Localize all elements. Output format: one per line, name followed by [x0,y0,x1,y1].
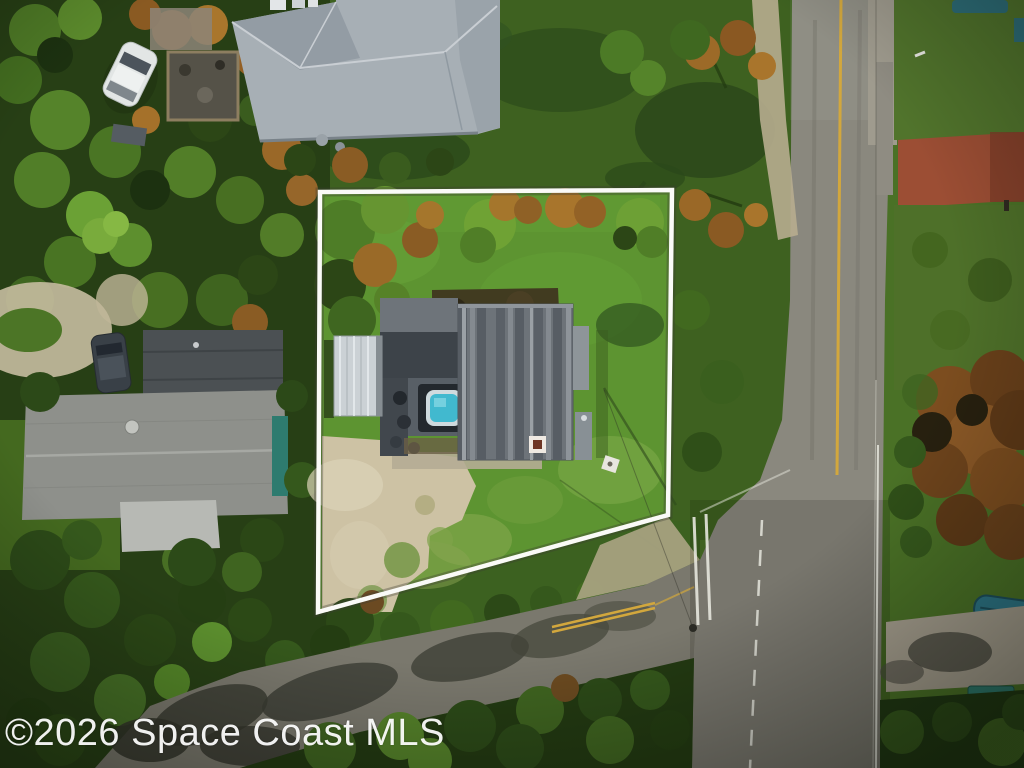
vignette [0,0,1024,768]
watermark: ©2026 Space Coast MLS [5,712,445,755]
aerial-photo: ©2026 Space Coast MLS [0,0,1024,768]
aerial-scene [0,0,1024,768]
